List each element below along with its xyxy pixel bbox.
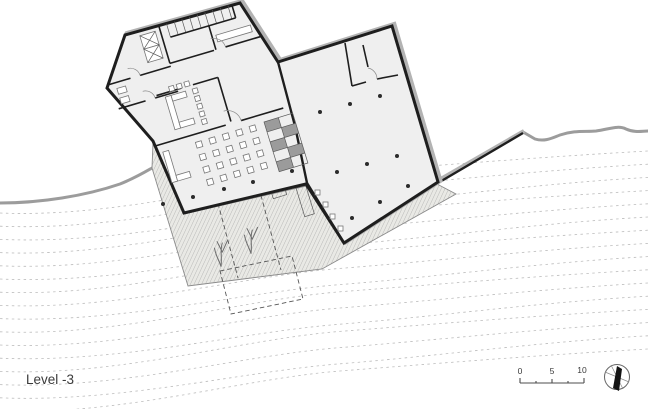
retaining-wall-shadow [439, 131, 524, 180]
north-arrow-icon [605, 365, 630, 392]
floor-plan-drawing: Level -3 0 5 10 [0, 0, 648, 409]
cafe-table [203, 166, 210, 173]
cafe-table [256, 150, 263, 157]
terrain-line-right [523, 127, 648, 140]
cafe-table [230, 158, 237, 165]
scale-tick-5: 5 [550, 366, 555, 376]
cafe-table [239, 141, 246, 148]
cafe-table [249, 125, 256, 132]
cafe-table [247, 166, 254, 173]
cafe-table [209, 137, 216, 144]
cafe-table [195, 141, 202, 148]
scale-bar: 0 5 10 [518, 365, 587, 383]
level-label: Level -3 [26, 372, 74, 387]
cafe-table [260, 162, 267, 169]
cafe-table [253, 137, 260, 144]
contour-line [0, 283, 648, 345]
contour-line [0, 309, 648, 371]
cafe-table [206, 178, 213, 185]
plan-svg: Level -3 0 5 10 [0, 0, 648, 409]
cafe-table [213, 149, 220, 156]
contour-line [0, 349, 648, 409]
contour-line [0, 270, 648, 332]
annotations: Level -3 0 5 10 [26, 365, 630, 392]
terrain-line-left [0, 168, 152, 203]
scale-tick-0: 0 [518, 366, 523, 376]
cafe-table [222, 133, 229, 140]
cafe-table [236, 129, 243, 136]
cafe-table [226, 145, 233, 152]
cafe-table [199, 153, 206, 160]
cafe-table [220, 174, 227, 181]
retaining-wall [438, 133, 523, 183]
scale-tick-10: 10 [577, 365, 587, 375]
cafe-table [243, 154, 250, 161]
cafe-table [233, 170, 240, 177]
cafe-table [216, 162, 223, 169]
